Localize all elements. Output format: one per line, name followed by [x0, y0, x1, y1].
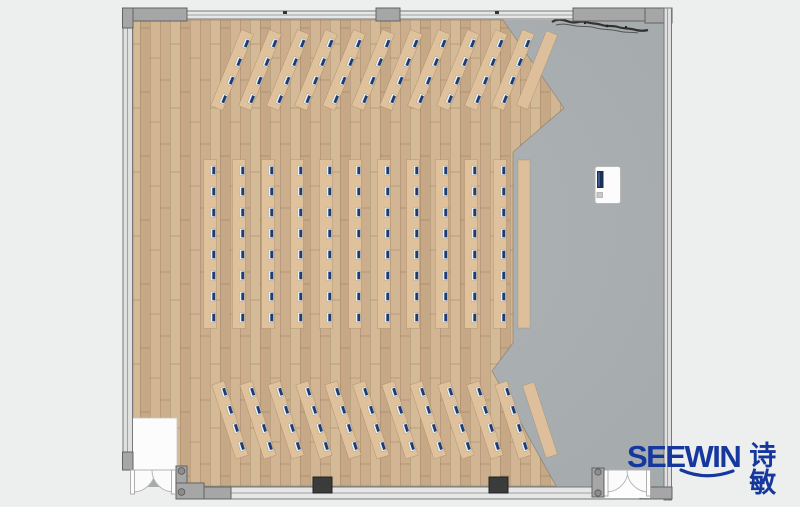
monitor-icon: [269, 313, 274, 323]
monitor-icon: [443, 292, 448, 302]
monitor-icon: [240, 166, 245, 176]
entrance-alcove: [131, 418, 177, 471]
monitor-icon: [240, 271, 245, 281]
monitor-icon: [385, 187, 390, 197]
monitor-icon: [443, 229, 448, 239]
monitor-icon: [501, 292, 506, 302]
monitor-icon: [443, 250, 448, 260]
monitor-icon: [356, 271, 361, 281]
monitor-icon: [298, 292, 303, 302]
monitor-icon: [414, 250, 419, 260]
monitor-icon: [356, 292, 361, 302]
monitor-icon: [298, 229, 303, 239]
monitor-icon: [414, 166, 419, 176]
monitor-icon: [385, 292, 390, 302]
monitor-icon: [501, 166, 506, 176]
monitor-icon: [443, 166, 448, 176]
monitor-icon: [501, 208, 506, 218]
monitor-icon: [211, 292, 216, 302]
podium-screen-icon: [597, 171, 604, 188]
monitor-icon: [327, 250, 332, 260]
monitor-icon: [327, 166, 332, 176]
monitor-icon: [385, 229, 390, 239]
structural-pillar: [313, 477, 332, 493]
monitor-icon: [414, 292, 419, 302]
monitor-icon: [211, 187, 216, 197]
monitor-icon: [501, 313, 506, 323]
monitor-icon: [327, 187, 332, 197]
monitor-icon: [472, 166, 477, 176]
monitor-icon: [240, 250, 245, 260]
monitor-icon: [269, 271, 274, 281]
monitor-icon: [269, 187, 274, 197]
brand-logo-swoosh-icon: [679, 468, 737, 480]
monitor-icon: [385, 166, 390, 176]
floorplan-drawing: [0, 0, 800, 507]
monitor-icon: [472, 229, 477, 239]
monitor-icon: [385, 250, 390, 260]
monitor-icon: [414, 229, 419, 239]
monitor-icon: [501, 271, 506, 281]
monitor-icon: [327, 292, 332, 302]
monitor-icon: [211, 271, 216, 281]
monitor-icon: [269, 250, 274, 260]
desk: [320, 160, 333, 329]
monitor-icon: [501, 250, 506, 260]
desk: [465, 160, 478, 329]
desk: [436, 160, 449, 329]
monitor-icon: [472, 313, 477, 323]
monitor-icon: [211, 166, 216, 176]
monitor-icon: [356, 166, 361, 176]
monitor-icon: [269, 292, 274, 302]
monitor-icon: [356, 208, 361, 218]
monitor-icon: [269, 166, 274, 176]
monitor-icon: [414, 187, 419, 197]
monitor-icon: [269, 208, 274, 218]
monitor-icon: [240, 187, 245, 197]
monitor-icon: [298, 313, 303, 323]
monitor-icon: [356, 187, 361, 197]
monitor-icon: [414, 271, 419, 281]
monitor-icon: [472, 292, 477, 302]
monitor-icon: [356, 229, 361, 239]
monitor-icon: [211, 313, 216, 323]
wall-tick: [495, 11, 499, 14]
monitor-icon: [240, 208, 245, 218]
structural-pillar: [489, 477, 508, 493]
monitor-icon: [414, 208, 419, 218]
right-wall: [664, 8, 672, 500]
brand-logo-chinese: 诗敏: [749, 443, 800, 497]
monitor-icon: [385, 271, 390, 281]
monitor-icon: [501, 187, 506, 197]
desk: [349, 160, 362, 329]
desk: [262, 160, 275, 329]
desk: [204, 160, 217, 329]
monitor-icon: [211, 229, 216, 239]
monitor-icon: [240, 292, 245, 302]
monitor-icon: [298, 208, 303, 218]
monitor-icon: [472, 187, 477, 197]
brand-logo: SEEWIN 诗敏: [627, 441, 800, 497]
podium: [595, 167, 621, 204]
monitor-icon: [443, 208, 448, 218]
monitor-icon: [414, 313, 419, 323]
monitor-icon: [298, 166, 303, 176]
desk: [407, 160, 420, 329]
monitor-icon: [472, 271, 477, 281]
monitor-icon: [385, 208, 390, 218]
left-wall: [123, 8, 134, 470]
monitor-icon: [298, 250, 303, 260]
monitor-icon: [269, 229, 274, 239]
monitor-icon: [211, 208, 216, 218]
wall-tick: [283, 11, 287, 14]
monitor-icon: [327, 208, 332, 218]
side-bench: [518, 160, 530, 328]
monitor-icon: [472, 208, 477, 218]
monitor-icon: [356, 313, 361, 323]
monitor-icon: [501, 229, 506, 239]
monitor-icon: [298, 187, 303, 197]
monitor-icon: [327, 313, 332, 323]
monitor-icon: [443, 313, 448, 323]
monitor-icon: [298, 271, 303, 281]
desk: [378, 160, 391, 329]
desk: [291, 160, 304, 329]
desk: [233, 160, 246, 329]
monitor-icon: [385, 313, 390, 323]
monitor-icon: [327, 271, 332, 281]
desk: [494, 160, 507, 329]
monitor-icon: [443, 187, 448, 197]
monitor-icon: [211, 250, 216, 260]
monitor-icon: [327, 229, 332, 239]
floorplan-canvas: SEEWIN 诗敏: [0, 0, 800, 507]
monitor-icon: [240, 313, 245, 323]
monitor-icon: [472, 250, 477, 260]
monitor-icon: [240, 229, 245, 239]
monitor-icon: [356, 250, 361, 260]
monitor-icon: [443, 271, 448, 281]
